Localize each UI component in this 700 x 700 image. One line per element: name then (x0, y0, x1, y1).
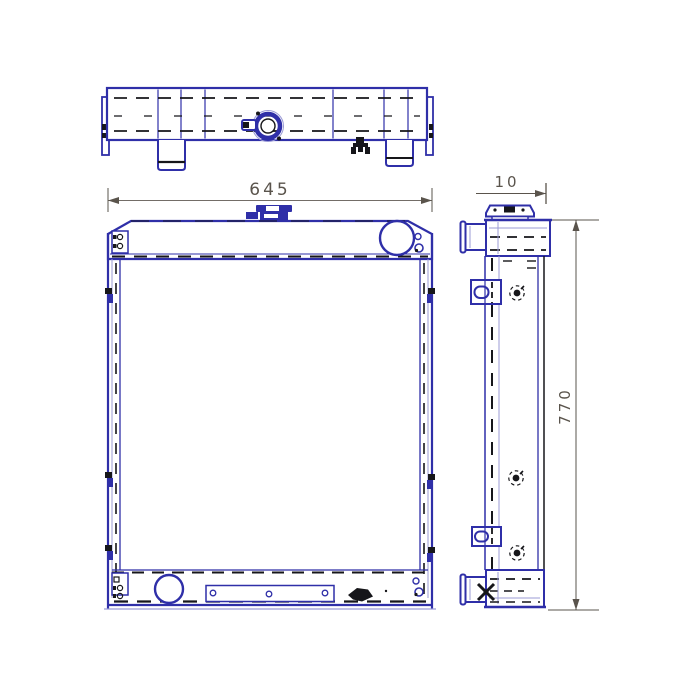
arrowhead-up-icon (573, 220, 580, 231)
clip-icon (427, 547, 435, 562)
inlet-pipe-side (461, 222, 487, 253)
technical-drawing-canvas: 645 (0, 0, 700, 700)
bottom-mounting-plate (206, 586, 334, 602)
clip-icon (427, 288, 435, 303)
top-view-left-flange-notch (102, 133, 106, 138)
radiator-drawing: 645 (0, 0, 700, 700)
filler-cap-side-icon (486, 206, 534, 221)
side-view (461, 206, 553, 608)
outlet-circle (155, 575, 183, 603)
bottom-left-corner-plate (112, 573, 128, 599)
top-view-right-flange-notch (429, 124, 433, 130)
bracket-slot (475, 532, 488, 542)
drain-mark (385, 590, 387, 592)
front-view (104, 205, 436, 609)
side-mount-clips (105, 288, 435, 562)
clip-icon (427, 474, 435, 489)
inlet-neck-circle (380, 221, 414, 255)
clip-icon (105, 545, 113, 560)
filler-cap-front-icon (246, 205, 292, 220)
top-right-bolt-mark (415, 249, 418, 252)
dimension-width-label: 645 (249, 180, 290, 200)
dimension-depth-label: 10 (494, 173, 519, 191)
top-view-left-flange-notch (102, 124, 106, 130)
drain-plug-front-icon (348, 588, 373, 602)
top-view-left-bracket (158, 140, 185, 170)
arrowhead-right-icon (421, 197, 432, 204)
bracket-slot (475, 287, 489, 299)
clip-icon (105, 288, 113, 303)
top-view-right-flange-notch (429, 133, 433, 138)
bolt-icon (510, 546, 524, 560)
front-bottom-tank (104, 570, 436, 609)
dimension-depth: 10 (476, 173, 546, 204)
dimension-height-label: 770 (556, 387, 574, 425)
bottom-right-bolt-mark (414, 593, 417, 596)
arrowhead-right-icon (535, 190, 546, 197)
side-bolts (509, 286, 524, 560)
clip-icon (105, 472, 113, 487)
dimension-height: 770 (548, 220, 599, 610)
bottom-right-bolt-hole (413, 578, 419, 584)
arrowhead-left-icon (108, 197, 119, 204)
bolt-icon (510, 286, 524, 300)
top-view (102, 88, 433, 170)
top-left-corner-plate (112, 231, 128, 253)
bolt-icon (509, 471, 523, 485)
side-bottom-tank (484, 570, 546, 607)
arrowhead-down-icon (573, 599, 580, 610)
top-view-right-bracket (386, 140, 413, 166)
side-bracket-bottom (472, 527, 501, 546)
side-bracket-top (471, 280, 501, 304)
